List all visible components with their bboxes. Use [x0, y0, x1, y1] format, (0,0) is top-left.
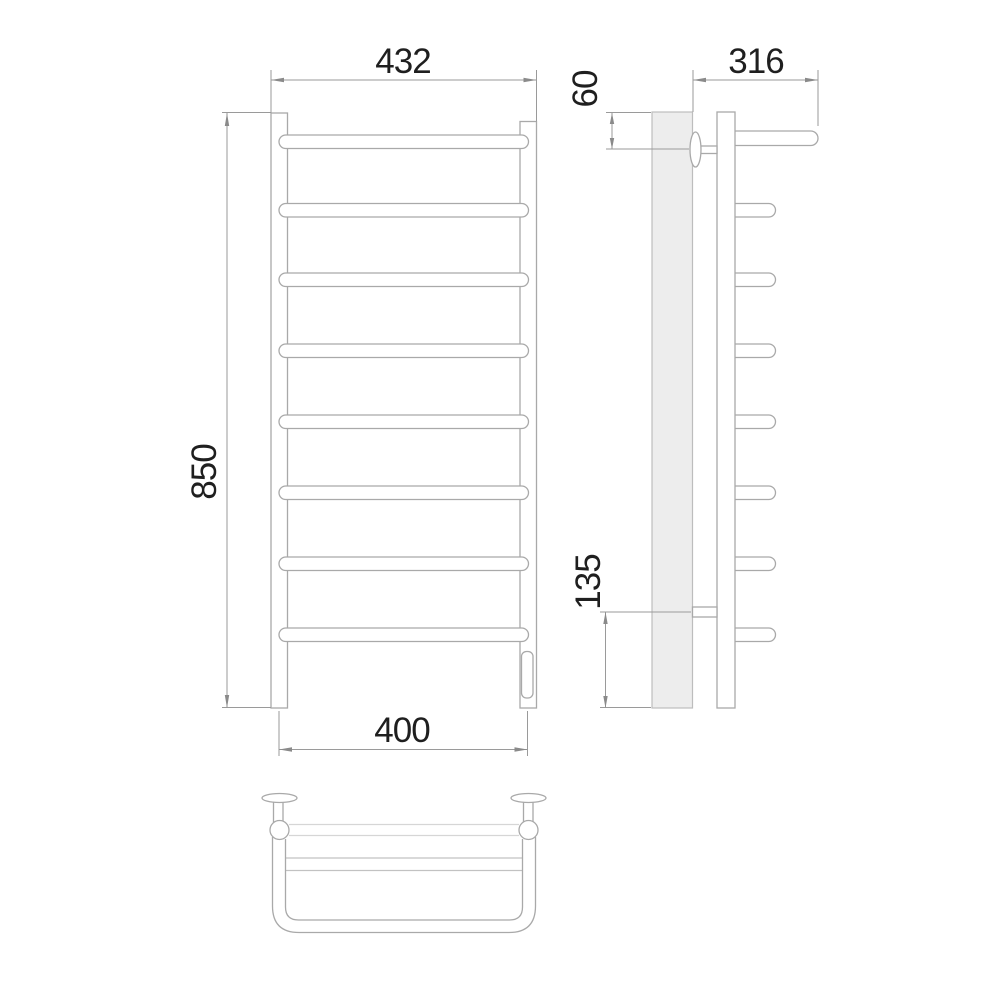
- front-rung-5: [279, 415, 529, 429]
- dim-60-label: 60: [566, 70, 605, 107]
- dim-432: 432: [271, 42, 537, 122]
- top-shelf-outer-outline: [273, 837, 536, 933]
- dim-432-label: 432: [375, 42, 430, 81]
- top-left-post-section: [270, 821, 289, 840]
- technical-drawing-canvas: 432 850 400: [0, 0, 1000, 1000]
- dim-316-arrow-right: [805, 78, 818, 82]
- top-left-wall-flange: [262, 794, 297, 803]
- front-heating-element-cover: [522, 652, 534, 699]
- dim-316-arrow-left: [693, 78, 706, 82]
- side-rung-stub-3: [729, 344, 776, 358]
- front-rung-6: [279, 486, 529, 500]
- side-rung-stub-5: [729, 486, 776, 500]
- dim-60-arrow-bottom: [610, 138, 614, 149]
- side-rung-stub-1: [729, 204, 776, 218]
- top-right-wall-flange: [511, 794, 546, 803]
- side-post: [717, 112, 735, 708]
- side-rung-stub-2: [729, 273, 776, 287]
- front-rung-8: [279, 628, 529, 642]
- side-view: [652, 112, 818, 708]
- dim-135-arrow-bottom: [603, 696, 607, 708]
- dim-850-arrow-bottom: [225, 695, 229, 708]
- top-right-post-section: [519, 821, 538, 840]
- top-right-bracket-stem: [524, 800, 534, 822]
- dim-432-arrow-left: [271, 78, 284, 82]
- top-view: [262, 794, 546, 933]
- dim-60-arrow-top: [610, 113, 614, 124]
- side-bottom-bracket-stem: [693, 607, 718, 617]
- dim-316: 316: [693, 42, 818, 126]
- front-rung-7: [279, 557, 529, 571]
- side-rung-stub-7: [729, 628, 776, 642]
- front-rung-3: [279, 273, 529, 287]
- dim-316-label: 316: [728, 42, 783, 81]
- front-rung-4: [279, 344, 529, 358]
- top-shelf-inner-outline: [286, 839, 523, 920]
- drawing-page: 432 850 400: [0, 0, 1000, 1000]
- dim-400-label: 400: [374, 711, 430, 750]
- front-rung-1: [279, 135, 529, 149]
- dim-850: 850: [185, 113, 271, 709]
- dim-400: 400: [279, 711, 528, 756]
- dim-432-arrow-right: [524, 78, 537, 82]
- front-left-post: [271, 113, 288, 708]
- side-wall-section: [652, 112, 693, 708]
- dim-135-arrow-top: [603, 612, 607, 624]
- dim-400-arrow-right: [515, 747, 528, 751]
- front-view: [271, 113, 537, 708]
- dim-850-arrow-top: [225, 113, 229, 126]
- dim-850-label: 850: [185, 444, 224, 500]
- side-top-bracket-flange: [690, 132, 701, 167]
- dim-135-label: 135: [569, 554, 608, 609]
- top-left-bracket-stem: [274, 800, 284, 822]
- dim-400-arrow-left: [279, 747, 292, 751]
- side-rung-stub-6: [729, 557, 776, 571]
- side-shelf-arm: [729, 131, 818, 146]
- front-rung-2: [279, 204, 529, 218]
- side-rung-stub-4: [729, 415, 776, 429]
